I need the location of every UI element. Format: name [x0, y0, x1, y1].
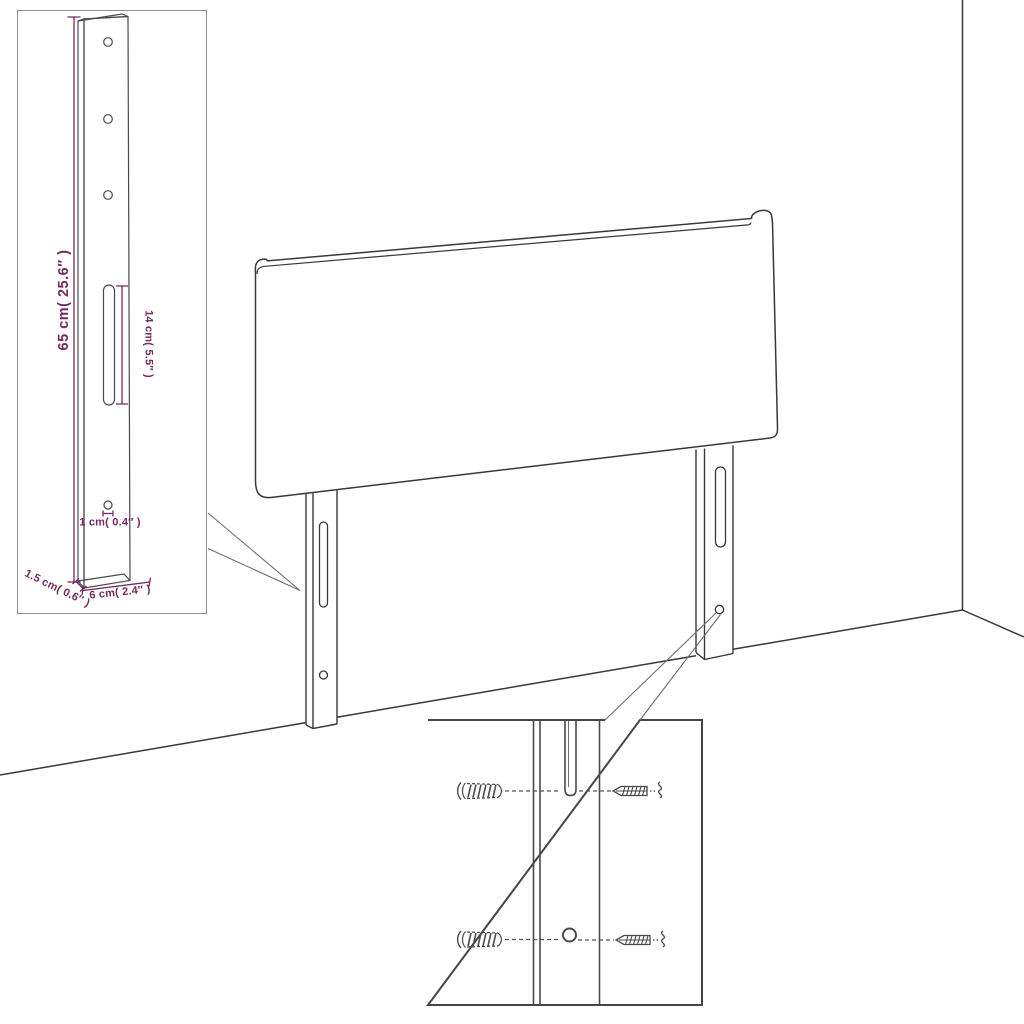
floor-line-left — [0, 610, 963, 775]
mounting-inset-slot — [565, 721, 576, 796]
leg-detail-small-hole — [104, 501, 112, 509]
screw-bottom — [616, 931, 664, 947]
right-leg-hole — [715, 605, 723, 613]
wall-anchor-top — [458, 783, 502, 800]
leg-detail-slot — [104, 285, 115, 405]
leg-detail-hole-1 — [104, 38, 113, 47]
left-leg-slot — [320, 522, 328, 607]
room-corner-lines — [0, 0, 1024, 775]
panel-top-fold-line — [257, 222, 751, 274]
mounting-detail-callout-lines — [605, 613, 721, 720]
headboard-panel — [255, 210, 777, 497]
right-leg-slot — [716, 467, 726, 547]
mounting-inset-leg-strip — [534, 721, 600, 1004]
dimension-label-slot-length: 14 cm( 5.5″ ) — [143, 310, 154, 378]
hardware-leader-lines — [505, 791, 614, 940]
leg-detail-hole-2 — [104, 115, 113, 124]
mounting-detail-inset — [428, 720, 702, 1005]
mounting-inset-hole — [563, 929, 576, 942]
left-leg-hole — [320, 671, 328, 679]
diagram-line-art — [0, 0, 1024, 1024]
dimension-label-leg-height: 65 cm( 25.6″ ) — [57, 250, 72, 351]
left-leg — [306, 491, 337, 729]
screw-top — [613, 782, 661, 798]
leg-detail-hole-3 — [104, 191, 113, 200]
dimension-label-hole-diameter: 1 cm( 0.4″ ) — [79, 518, 140, 529]
leg-detail-callout-lines — [208, 513, 300, 591]
wall-anchor-bottom — [458, 931, 502, 948]
panel-outline — [255, 210, 777, 497]
headboard-dimension-diagram: 65 cm( 25.6″ ) 14 cm( 5.5″ ) 1 cm( 0.4″ … — [0, 0, 1024, 1024]
floor-line-right — [963, 610, 1024, 637]
